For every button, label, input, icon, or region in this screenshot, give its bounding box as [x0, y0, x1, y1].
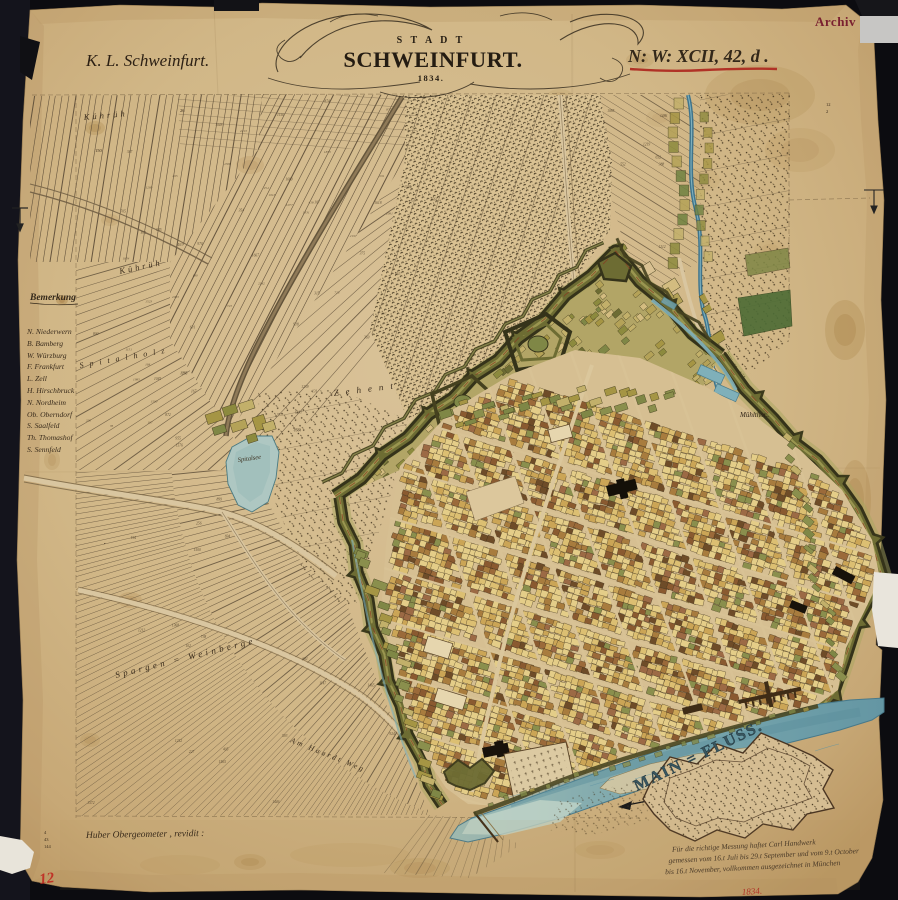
svg-text:B. Bamberg: B. Bamberg [27, 339, 63, 348]
svg-text:F. Frankfurt: F. Frankfurt [26, 362, 65, 371]
svg-text:1465: 1465 [367, 684, 374, 688]
svg-text:631: 631 [190, 326, 196, 330]
svg-text:2093: 2093 [172, 295, 179, 299]
svg-text:1212: 1212 [175, 739, 182, 743]
svg-text:1241: 1241 [295, 410, 302, 414]
svg-text:1680: 1680 [285, 178, 292, 182]
svg-text:2: 2 [826, 109, 828, 114]
svg-text:1045: 1045 [154, 377, 161, 381]
svg-text:S. Sennfeld: S. Sennfeld [27, 445, 61, 454]
svg-text:291: 291 [379, 174, 384, 178]
svg-text:1016: 1016 [269, 193, 276, 197]
svg-text:Mühlthor..: Mühlthor.. [739, 411, 769, 419]
svg-text:78: 78 [110, 424, 114, 428]
svg-text:874: 874 [324, 100, 330, 104]
svg-text:Bemerkung: Bemerkung [29, 293, 76, 303]
svg-text:296: 296 [86, 419, 91, 423]
svg-text:694: 694 [225, 534, 231, 538]
svg-text:1618: 1618 [374, 201, 381, 205]
svg-text:144: 144 [44, 844, 52, 849]
svg-text:N. Niederwern: N. Niederwern [26, 327, 72, 336]
svg-text:1212: 1212 [138, 629, 145, 633]
svg-text:723: 723 [227, 304, 232, 308]
svg-text:S. Saalfeld: S. Saalfeld [27, 421, 60, 430]
svg-text:987: 987 [381, 311, 386, 315]
svg-text:102: 102 [186, 644, 192, 648]
svg-text:899: 899 [217, 497, 223, 501]
svg-text:107: 107 [314, 200, 320, 204]
svg-text:167: 167 [191, 390, 197, 394]
svg-text:1667: 1667 [252, 254, 259, 258]
svg-text:1576: 1576 [176, 444, 183, 448]
svg-text:705: 705 [120, 210, 126, 214]
svg-text:375: 375 [360, 251, 366, 255]
svg-text:187: 187 [147, 420, 152, 424]
svg-text:W. Würzburg: W. Würzburg [27, 351, 67, 360]
svg-text:1854: 1854 [123, 257, 130, 261]
svg-text:1500: 1500 [151, 400, 158, 404]
svg-text:2091: 2091 [386, 211, 393, 215]
svg-text:1873: 1873 [324, 150, 331, 154]
svg-text:Th. Thomashof: Th. Thomashof [27, 433, 73, 442]
svg-text:315: 315 [314, 291, 320, 295]
svg-text:787: 787 [277, 412, 282, 416]
svg-text:168: 168 [145, 363, 150, 367]
svg-text:254: 254 [264, 186, 269, 190]
svg-text:1260: 1260 [146, 186, 153, 190]
svg-text:131: 131 [312, 390, 318, 394]
svg-text:970: 970 [197, 242, 203, 246]
svg-text:1057: 1057 [181, 370, 188, 374]
svg-text:K. L. Schweinfurt.: K. L. Schweinfurt. [85, 51, 209, 70]
svg-text:1368: 1368 [172, 624, 179, 628]
svg-text:12: 12 [38, 870, 56, 888]
svg-text:354: 354 [239, 209, 245, 213]
svg-text:2197: 2197 [350, 234, 357, 238]
svg-text:872: 872 [165, 413, 171, 417]
svg-text:1594: 1594 [404, 185, 411, 189]
svg-text:738: 738 [201, 635, 207, 639]
svg-text:1834.: 1834. [418, 73, 445, 83]
svg-text:N: W: XCII, 42, d .: N: W: XCII, 42, d . [627, 46, 769, 66]
svg-text:L. Zell: L. Zell [26, 374, 47, 383]
svg-text:1625: 1625 [293, 427, 300, 431]
svg-text:403: 403 [177, 243, 183, 247]
svg-text:1331: 1331 [303, 211, 310, 215]
svg-text:256: 256 [196, 521, 202, 525]
svg-text:418: 418 [309, 200, 314, 204]
svg-text:1523: 1523 [145, 299, 152, 303]
svg-text:1985: 1985 [133, 378, 140, 382]
svg-text:194: 194 [131, 536, 137, 540]
svg-text:1147: 1147 [319, 682, 326, 686]
svg-text:H. Hirschbruck: H. Hirschbruck [26, 386, 75, 395]
svg-text:2213: 2213 [240, 129, 247, 133]
svg-text:265: 265 [173, 174, 178, 178]
svg-text:800: 800 [93, 332, 99, 336]
svg-text:1219: 1219 [643, 143, 650, 147]
svg-text:S T A D T: S T A D T [397, 35, 466, 46]
svg-text:369: 369 [364, 336, 370, 340]
svg-text:652: 652 [656, 156, 662, 160]
svg-text:1486: 1486 [660, 114, 667, 118]
svg-text:1239: 1239 [301, 385, 308, 389]
svg-text:918: 918 [293, 323, 299, 327]
svg-text:1212: 1212 [658, 245, 665, 249]
svg-text:552: 552 [620, 163, 626, 167]
svg-text:1561: 1561 [430, 198, 437, 202]
svg-text:955: 955 [175, 436, 181, 440]
svg-text:726: 726 [334, 291, 339, 295]
svg-text:Archiv: Archiv [815, 14, 856, 29]
svg-text:1500: 1500 [194, 548, 201, 552]
svg-text:388: 388 [659, 163, 665, 167]
svg-text:1077: 1077 [286, 203, 293, 207]
svg-text:963: 963 [395, 272, 401, 276]
svg-text:1151: 1151 [125, 347, 132, 351]
svg-text:387: 387 [127, 150, 133, 154]
svg-text:1834.: 1834. [741, 886, 762, 897]
svg-text:924: 924 [389, 732, 395, 736]
svg-text:1771: 1771 [407, 199, 414, 203]
svg-text:1565: 1565 [219, 760, 226, 764]
svg-text:1085: 1085 [607, 109, 614, 113]
svg-text:1446: 1446 [272, 800, 279, 804]
svg-text:2182: 2182 [258, 282, 265, 286]
svg-text:Ob. Oberndorf: Ob. Oberndorf [27, 410, 73, 419]
svg-text:Huber Obergeometer , revidit :: Huber Obergeometer , revidit : [85, 829, 204, 841]
svg-text:227: 227 [189, 750, 195, 754]
svg-text:150: 150 [95, 148, 103, 153]
svg-text:26: 26 [180, 108, 185, 113]
svg-text:1308: 1308 [224, 162, 231, 166]
svg-text:N. Nordheim: N. Nordheim [26, 398, 66, 407]
svg-text:405: 405 [223, 748, 229, 752]
svg-text:1572: 1572 [87, 801, 94, 805]
svg-text:180: 180 [193, 274, 198, 278]
svg-text:SCHWEINFURT.: SCHWEINFURT. [343, 47, 522, 72]
svg-text:43: 43 [44, 837, 49, 842]
svg-text:12: 12 [826, 102, 831, 107]
svg-text:593: 593 [282, 734, 288, 738]
